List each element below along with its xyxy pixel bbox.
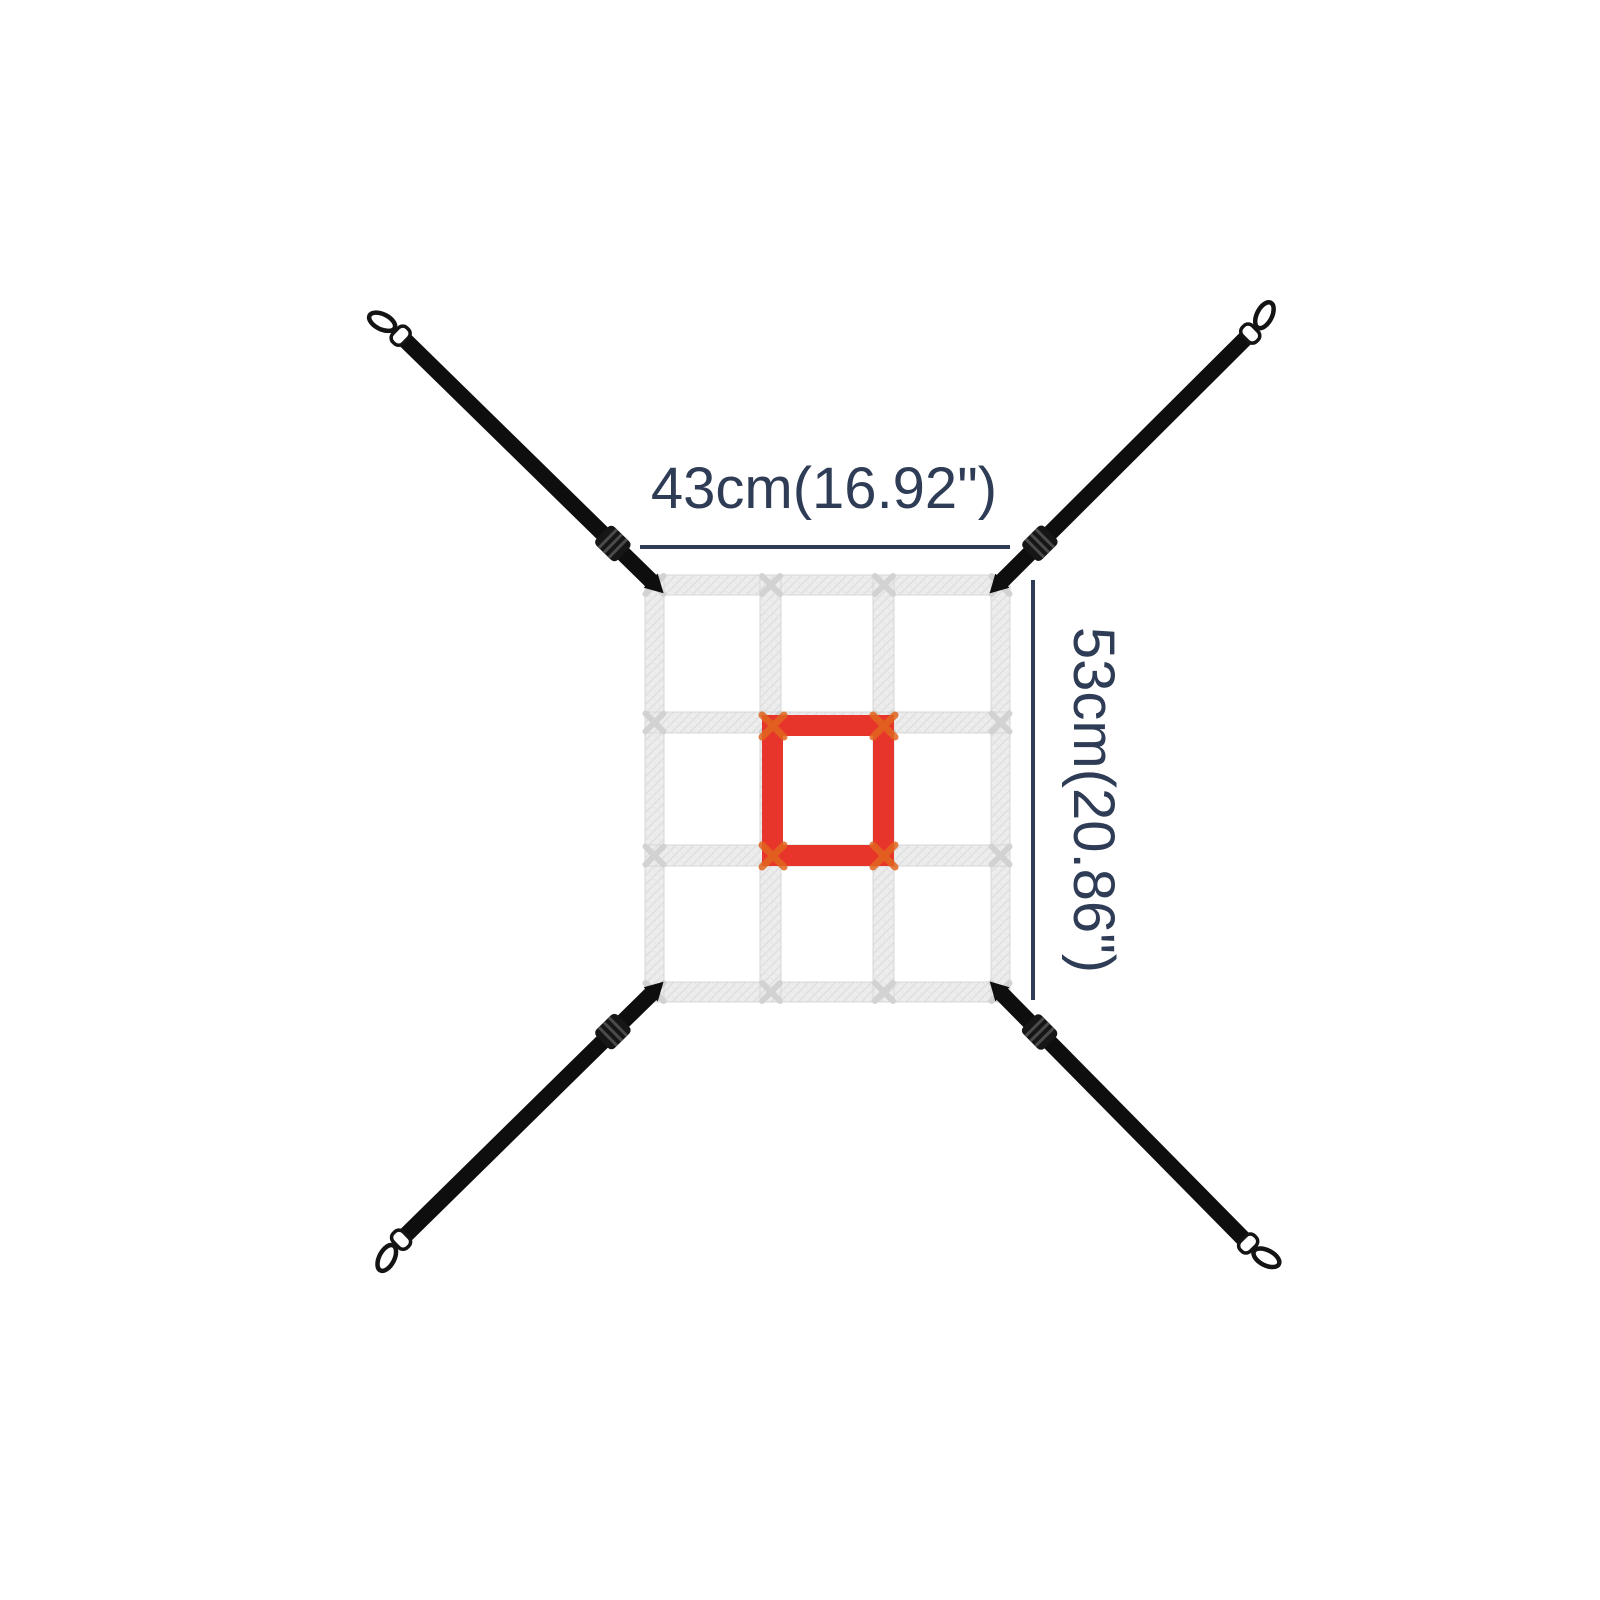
target-square (773, 726, 884, 856)
net-frame-right (991, 575, 1010, 1002)
net-frame-bottom (645, 982, 1010, 1002)
net-frame-left (645, 575, 664, 1002)
strap-top-right (979, 296, 1286, 602)
diagram-canvas (0, 0, 1600, 1600)
net-frame-top (645, 575, 1010, 595)
net-panel (645, 575, 1010, 1002)
strap-top-left (363, 299, 673, 603)
strap-bottom-right (980, 971, 1285, 1280)
product-diagram: 43cm(16.92") 53cm(20.86") (0, 0, 1600, 1600)
stitch-marks (646, 576, 1010, 1001)
width-dimension-label: 43cm(16.92") (651, 460, 997, 518)
height-dimension-label: 53cm(20.86") (1064, 627, 1122, 973)
strap-bottom-left (364, 973, 673, 1278)
